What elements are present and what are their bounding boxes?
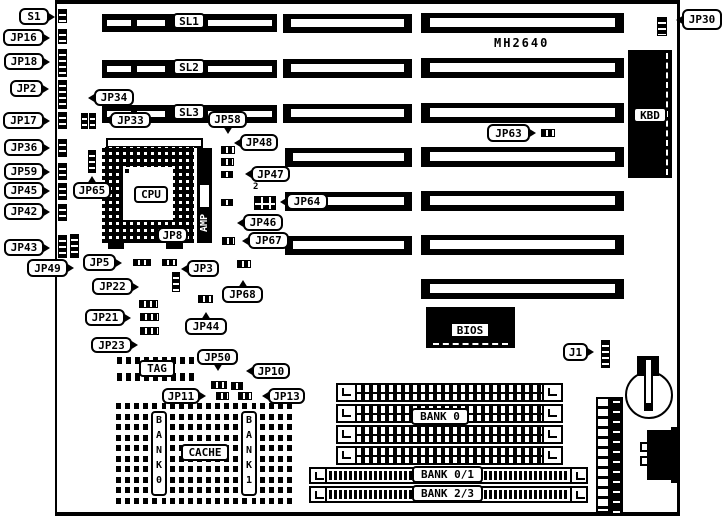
power-pins-inner <box>610 397 623 513</box>
callout-jp65: JP65 <box>73 182 111 199</box>
callout-jp30: JP30 <box>682 9 722 30</box>
bios-dashed-edge <box>433 343 508 345</box>
bank0-label: BANK 0 <box>411 408 469 425</box>
jp48-jumper <box>221 158 234 166</box>
bank01-label: BANK 0/1 <box>412 466 483 483</box>
jp50-jumper <box>211 381 227 389</box>
tag-label: TAG <box>139 360 175 377</box>
jp67-jumper <box>222 237 235 245</box>
jp43-jumper <box>58 235 67 258</box>
jp49-jumper <box>70 234 79 258</box>
jp16-jumper <box>58 29 67 44</box>
jp13-jumper <box>238 392 252 400</box>
amp-window <box>200 185 209 207</box>
jp47-jumper <box>221 171 233 178</box>
jp64-jumper <box>254 196 276 210</box>
callout-jp46: JP46 <box>243 214 283 231</box>
isa-slot-6 <box>421 235 624 255</box>
isa-slot-6-mid <box>285 236 412 255</box>
callout-jp21: JP21 <box>85 309 125 326</box>
power-connector <box>596 397 623 513</box>
callout-jp36: JP36 <box>4 139 44 156</box>
callout-jp47: JP47 <box>251 166 290 182</box>
jp17-jumper <box>58 112 67 129</box>
cache-label: CACHE <box>181 444 229 461</box>
jp8-jumper <box>162 259 177 266</box>
callout-jp11: JP11 <box>162 388 200 404</box>
slot-key <box>107 20 131 26</box>
callout-jp64: JP64 <box>286 193 328 210</box>
callout-jp13: JP13 <box>268 388 305 404</box>
callout-jp33: JP33 <box>110 112 151 128</box>
power-pins-outer <box>596 397 610 513</box>
callout-jp67: JP67 <box>248 232 289 249</box>
callout-jp49: JP49 <box>27 259 68 277</box>
jp64-pin1-number: 2 <box>253 182 258 192</box>
isa-slot-3 <box>421 103 624 123</box>
isa-slot-1 <box>421 13 624 33</box>
callout-jp16: JP16 <box>3 29 44 46</box>
simm-socket-3 <box>336 425 563 444</box>
callout-jp2: JP2 <box>10 80 43 97</box>
isa-slot-4-mid <box>285 148 412 167</box>
jp45-jumper <box>58 183 67 200</box>
callout-jp10: JP10 <box>252 363 290 379</box>
cache-bank1-label: B A N K 1 <box>241 411 257 496</box>
kbd-label: KBD <box>633 107 667 123</box>
jp34-jumper <box>81 113 88 129</box>
pin1-marker <box>125 169 129 173</box>
jp10-jumper <box>231 382 243 390</box>
s1-switch <box>58 9 67 23</box>
slot-key <box>208 20 272 26</box>
callout-jp23: JP23 <box>91 337 132 353</box>
slot-key <box>137 20 165 26</box>
battery-clip-tip <box>646 403 651 410</box>
jp11-jumper <box>216 392 229 400</box>
jp23-jumper <box>140 327 159 335</box>
simm-socket-1 <box>336 383 563 402</box>
jp44-jumper <box>198 295 213 303</box>
din-connector-pin <box>640 442 649 452</box>
slot-label-sl3: SL3 <box>173 104 205 120</box>
j1-jumper <box>601 340 610 368</box>
jp46-jumper <box>221 199 233 206</box>
callout-jp63: JP63 <box>487 124 530 142</box>
callout-jp18: JP18 <box>4 53 44 70</box>
callout-jp5: JP5 <box>83 254 116 271</box>
callout-jp34: JP34 <box>94 89 134 106</box>
callout-jp45: JP45 <box>4 182 44 199</box>
jp42-jumper <box>58 204 67 221</box>
slot-label-sl2: SL2 <box>173 59 205 75</box>
callout-jp42: JP42 <box>4 203 44 220</box>
jp21-jumper <box>140 313 159 321</box>
jp36-jumper <box>58 139 67 157</box>
isa-slot-2-mid <box>283 59 412 78</box>
isa-slot-4 <box>421 147 624 167</box>
callout-jp17: JP17 <box>3 112 44 129</box>
slot-label-sl1: SL1 <box>173 13 205 29</box>
din-connector-body <box>647 430 673 480</box>
vlb-slot-1: SL1 <box>102 14 277 32</box>
callout-jp58: JP58 <box>208 111 247 128</box>
callout-jp48: JP48 <box>240 134 278 151</box>
isa-slot-2 <box>421 58 624 78</box>
callout-jp8: JP8 <box>157 227 188 243</box>
board-model-text: MH2640 <box>494 36 549 50</box>
callout-j1: J1 <box>563 343 588 361</box>
callout-jp59: JP59 <box>4 163 44 180</box>
simm-socket-4 <box>336 446 563 465</box>
jp33-jumper <box>89 113 96 129</box>
amp-label: AMP <box>197 207 212 239</box>
cpu-label: CPU <box>134 186 168 203</box>
jp30-jumper <box>657 17 667 36</box>
jp18-jumper <box>58 49 67 77</box>
isa-slot-7 <box>421 279 624 299</box>
jp22-jumper <box>139 300 158 308</box>
din-connector-pin <box>640 456 649 466</box>
jp58-jumper <box>221 146 235 154</box>
jp68-jumper <box>237 260 251 268</box>
cache-bank0-label: B A N K 0 <box>151 411 167 496</box>
socket-foot <box>108 243 124 249</box>
jp59-jumper <box>58 163 67 180</box>
slot-key <box>208 66 272 72</box>
isa-slot-5 <box>421 191 624 211</box>
jp65-jumper <box>88 150 96 173</box>
jp3-jumper <box>172 272 180 292</box>
callout-jp44: JP44 <box>185 318 227 335</box>
callout-jp3: JP3 <box>187 260 219 277</box>
callout-jp50: JP50 <box>197 349 238 365</box>
bios-label: BIOS <box>450 322 490 338</box>
din-connector-flange <box>671 427 680 483</box>
isa-slot-3-mid <box>283 104 412 123</box>
jp5-jumper <box>133 259 151 266</box>
callout-jp22: JP22 <box>92 278 133 295</box>
slot-key <box>137 66 165 72</box>
jp63-jumper <box>541 129 555 137</box>
motherboard-diagram: MH2640 SL1 SL2 SL3 <box>0 0 725 520</box>
slot-key <box>107 66 131 72</box>
bank23-label: BANK 2/3 <box>412 485 483 502</box>
vlb-slot-2: SL2 <box>102 60 277 78</box>
callout-jp68: JP68 <box>222 286 263 303</box>
jp2-jumper <box>58 80 67 109</box>
callout-s1: S1 <box>19 8 49 25</box>
callout-jp43: JP43 <box>4 239 44 256</box>
amp-connector: AMP <box>197 148 212 243</box>
isa-slot-1-mid <box>283 14 412 33</box>
